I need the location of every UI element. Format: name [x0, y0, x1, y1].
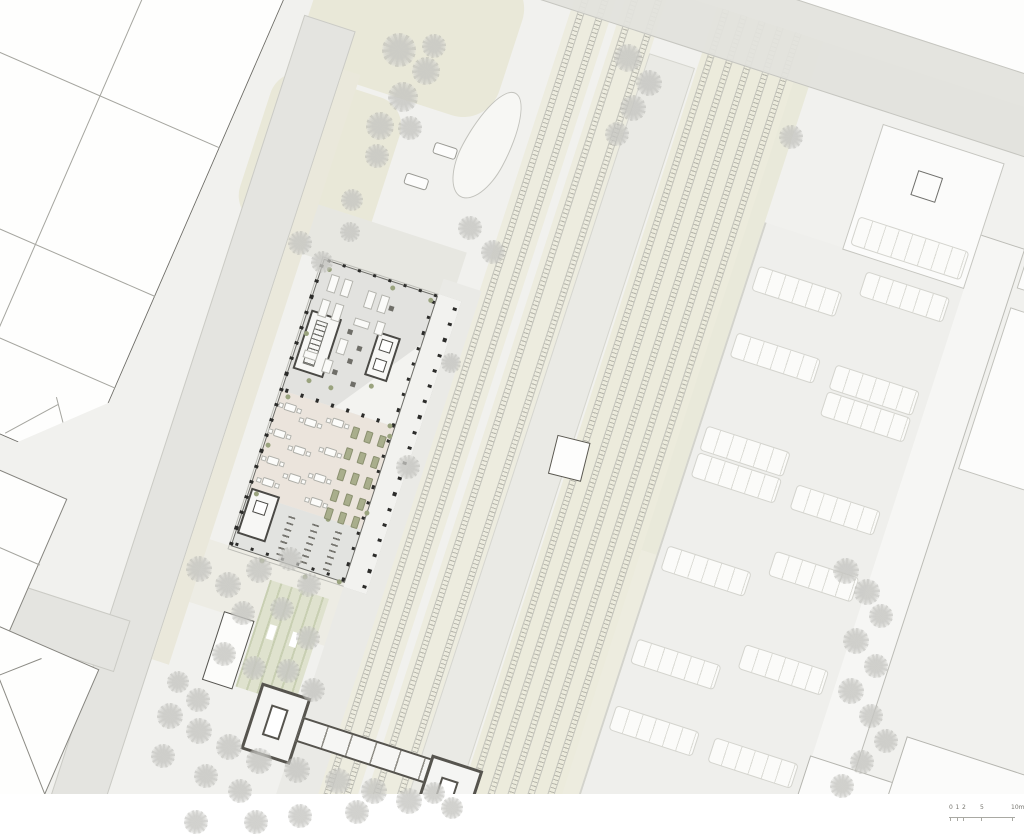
- tree: [296, 626, 320, 650]
- tree: [228, 779, 252, 803]
- tree: [874, 729, 898, 753]
- tree: [231, 601, 255, 625]
- tree: [441, 353, 461, 373]
- tree: [167, 671, 189, 693]
- tree: [396, 788, 422, 814]
- tree: [843, 628, 869, 654]
- scale-tick: [963, 817, 964, 821]
- tree: [366, 112, 394, 140]
- tree: [244, 810, 268, 834]
- tree: [288, 804, 312, 828]
- tree: [361, 778, 387, 804]
- tree: [859, 704, 883, 728]
- tree: [614, 44, 642, 72]
- tree: [398, 116, 422, 140]
- scale-tick: [957, 817, 958, 821]
- tree: [284, 757, 310, 783]
- tree: [278, 547, 302, 571]
- scale-label-2: 2: [962, 805, 966, 811]
- tree: [276, 659, 300, 683]
- tree: [184, 810, 208, 834]
- tree: [340, 222, 360, 242]
- tree: [441, 797, 463, 819]
- scale-label-0: 0: [949, 805, 953, 811]
- tree: [212, 642, 236, 666]
- tree: [341, 189, 363, 211]
- tree: [345, 800, 369, 824]
- tree: [850, 750, 874, 774]
- tree: [830, 774, 854, 798]
- tree: [215, 572, 241, 598]
- scale-tick: [950, 817, 951, 821]
- tree: [382, 33, 416, 67]
- roof-line: [0, 514, 40, 566]
- tree: [297, 573, 321, 597]
- tree: [620, 95, 646, 121]
- tree: [242, 656, 266, 680]
- tree: [481, 240, 505, 264]
- tree: [779, 125, 803, 149]
- tree: [216, 734, 242, 760]
- scale-label-1: 1: [956, 805, 960, 811]
- roof-line: [0, 192, 156, 297]
- tree: [151, 744, 175, 768]
- tree: [270, 597, 294, 621]
- tree: [388, 82, 418, 112]
- tree: [412, 57, 440, 85]
- tree: [288, 231, 312, 255]
- tree: [194, 764, 218, 788]
- tree: [396, 455, 420, 479]
- tree: [854, 579, 880, 605]
- tree: [838, 678, 864, 704]
- tree: [186, 556, 212, 582]
- tree: [246, 557, 272, 583]
- tree: [422, 34, 446, 58]
- tree: [423, 782, 445, 804]
- tree: [636, 70, 662, 96]
- tree: [186, 688, 210, 712]
- tree: [365, 144, 389, 168]
- tree: [864, 654, 888, 678]
- roof-line: [0, 658, 42, 714]
- sheet-margin: [0, 794, 1024, 834]
- roof-line: [0, 658, 47, 798]
- scale-tick: [1012, 817, 1013, 821]
- roof-line: [0, 284, 116, 389]
- tree: [186, 718, 212, 744]
- scale-label-5: 5: [980, 805, 984, 811]
- scale-label-10m: 10m: [1011, 805, 1024, 811]
- tree: [301, 678, 325, 702]
- tree: [311, 251, 333, 273]
- tree: [605, 122, 629, 146]
- tree: [325, 768, 351, 794]
- site-plan-sheet: 0 1 2 5 10m: [0, 0, 1024, 834]
- tree: [458, 216, 482, 240]
- tree: [833, 558, 859, 584]
- scale-tick: [981, 817, 982, 821]
- scale-bar-line: [949, 817, 1015, 818]
- tree: [869, 604, 893, 628]
- tree: [157, 703, 183, 729]
- tree: [246, 748, 272, 774]
- roof-line: [0, 43, 221, 148]
